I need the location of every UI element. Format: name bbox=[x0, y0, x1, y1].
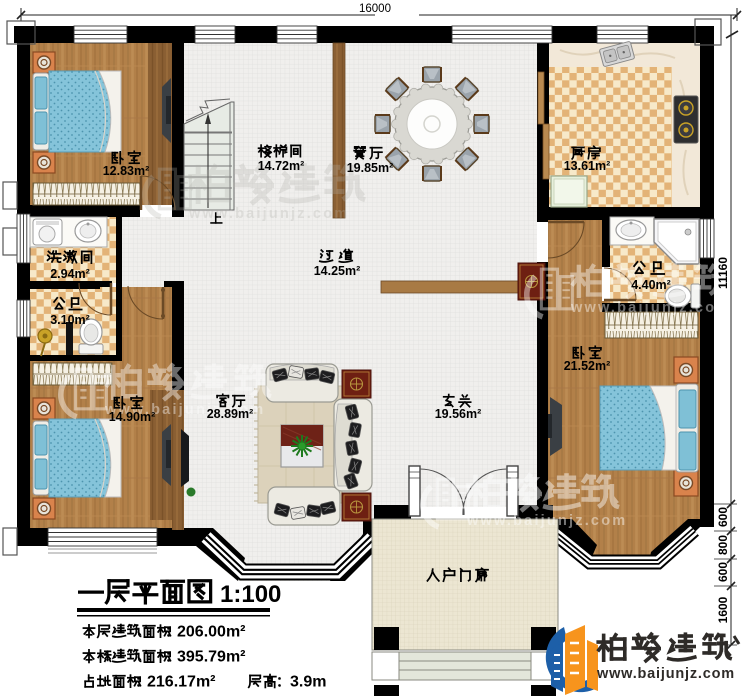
svg-text:1:100: 1:100 bbox=[220, 581, 281, 608]
svg-text:600: 600 bbox=[716, 507, 730, 527]
svg-text:14.25m²: 14.25m² bbox=[314, 264, 361, 278]
svg-text:216.17m²: 216.17m² bbox=[147, 674, 216, 691]
svg-text:www.baijunjz.com: www.baijunjz.com bbox=[188, 206, 349, 222]
svg-text:13.61m²: 13.61m² bbox=[564, 159, 611, 173]
svg-text:14.72m²: 14.72m² bbox=[258, 159, 305, 173]
svg-text:12.83m²: 12.83m² bbox=[103, 164, 150, 178]
svg-text:3.9m: 3.9m bbox=[290, 674, 326, 691]
svg-text:19.56m²: 19.56m² bbox=[435, 407, 482, 421]
svg-text:：: ： bbox=[276, 674, 290, 690]
svg-text:1600: 1600 bbox=[716, 596, 730, 623]
svg-text:11160: 11160 bbox=[716, 257, 730, 289]
svg-text:4.40m²: 4.40m² bbox=[631, 278, 671, 292]
svg-text:21.52m²: 21.52m² bbox=[564, 359, 611, 373]
svg-text:19.85m²: 19.85m² bbox=[347, 161, 394, 175]
svg-text:14.90m²: 14.90m² bbox=[109, 410, 156, 424]
svg-text:www.baijunjz.com: www.baijunjz.com bbox=[570, 300, 731, 316]
svg-text:206.00m²: 206.00m² bbox=[177, 624, 246, 641]
svg-text:www.baijunjz.com: www.baijunjz.com bbox=[466, 513, 627, 529]
svg-text:3.10m²: 3.10m² bbox=[50, 313, 90, 327]
svg-text:16000: 16000 bbox=[359, 3, 391, 15]
svg-text:600: 600 bbox=[716, 562, 730, 582]
svg-text:28.89m²: 28.89m² bbox=[207, 407, 254, 421]
svg-text:800: 800 bbox=[716, 535, 730, 555]
svg-text:2.94m²: 2.94m² bbox=[50, 267, 90, 281]
svg-text:395.79m²: 395.79m² bbox=[177, 649, 246, 666]
svg-text:www.baijunjz.com: www.baijunjz.com bbox=[596, 666, 735, 682]
